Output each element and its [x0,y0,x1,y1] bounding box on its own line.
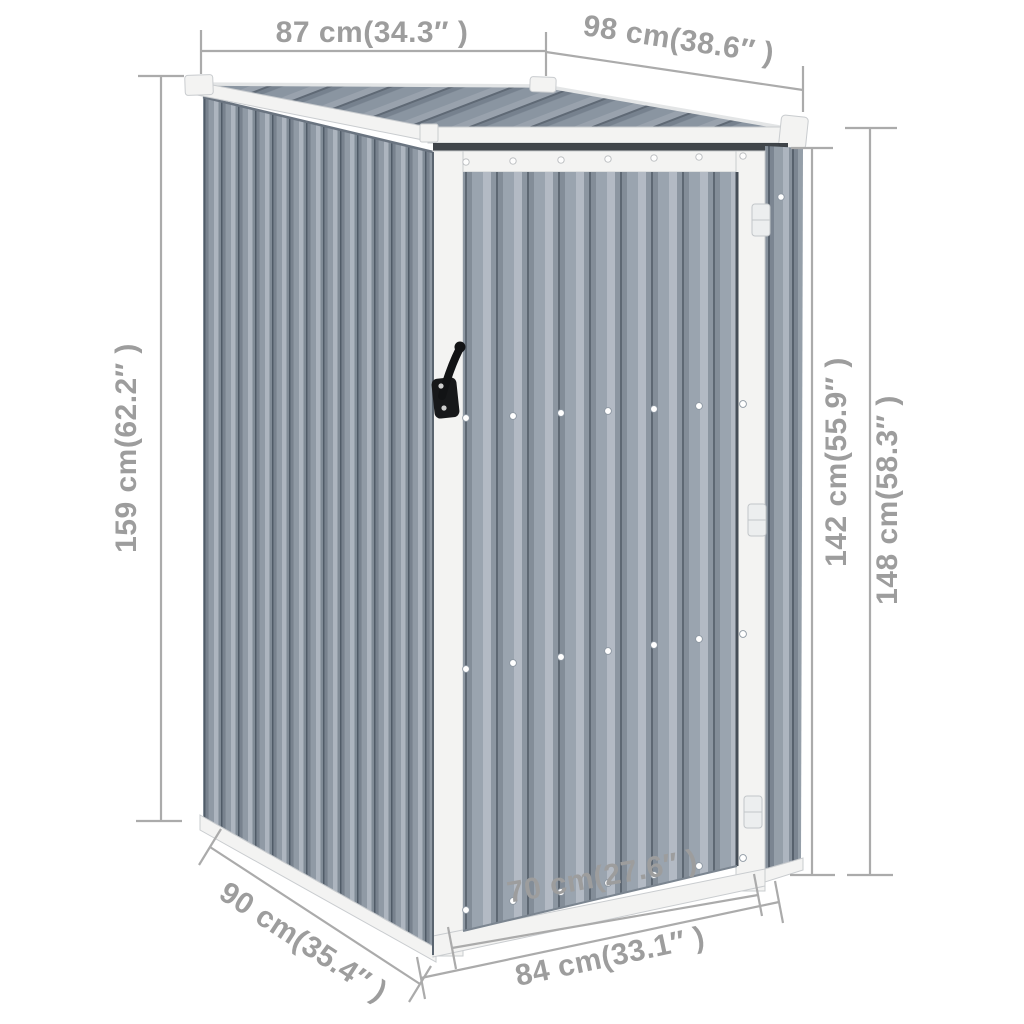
left-wall-panel [203,97,433,955]
door [431,153,784,931]
roof-front-fascia [428,127,800,143]
dim-label-height-door: 142 cm(55.9″ ) [820,357,853,567]
shed-illustration [185,75,809,962]
dim-label-roof-width: 87 cm(34.3″ ) [276,16,469,49]
door-frame-left-stile [433,151,463,956]
door-panel [463,172,737,931]
dim-height-left: 159 cm(62.2″ ) [110,76,184,821]
dim-label-height-left: 159 cm(62.2″ ) [110,343,143,553]
roof-corner-joint [420,124,438,142]
product-diagram-canvas: 87 cm(34.3″ ) 98 cm(38.6″ ) 159 cm(62.2″… [0,0,1024,1024]
left-wall [200,97,436,962]
dim-label-height-right: 148 cm(58.3″ ) [871,395,904,605]
dim-height-right: 148 cm(58.3″ ) [845,128,904,875]
roof-corner-cap-left [185,75,214,96]
front-right-wall-strip [765,146,803,871]
dim-roof-width: 87 cm(34.3″ ) [201,16,546,76]
front-wall [431,143,803,957]
shed-dimension-diagram: 87 cm(34.3″ ) 98 cm(38.6″ ) 159 cm(62.2″… [0,0,1024,1024]
strip-screw [778,194,784,200]
roof-corner-cap-back [530,77,557,93]
door-frame-top-rail [433,151,765,172]
